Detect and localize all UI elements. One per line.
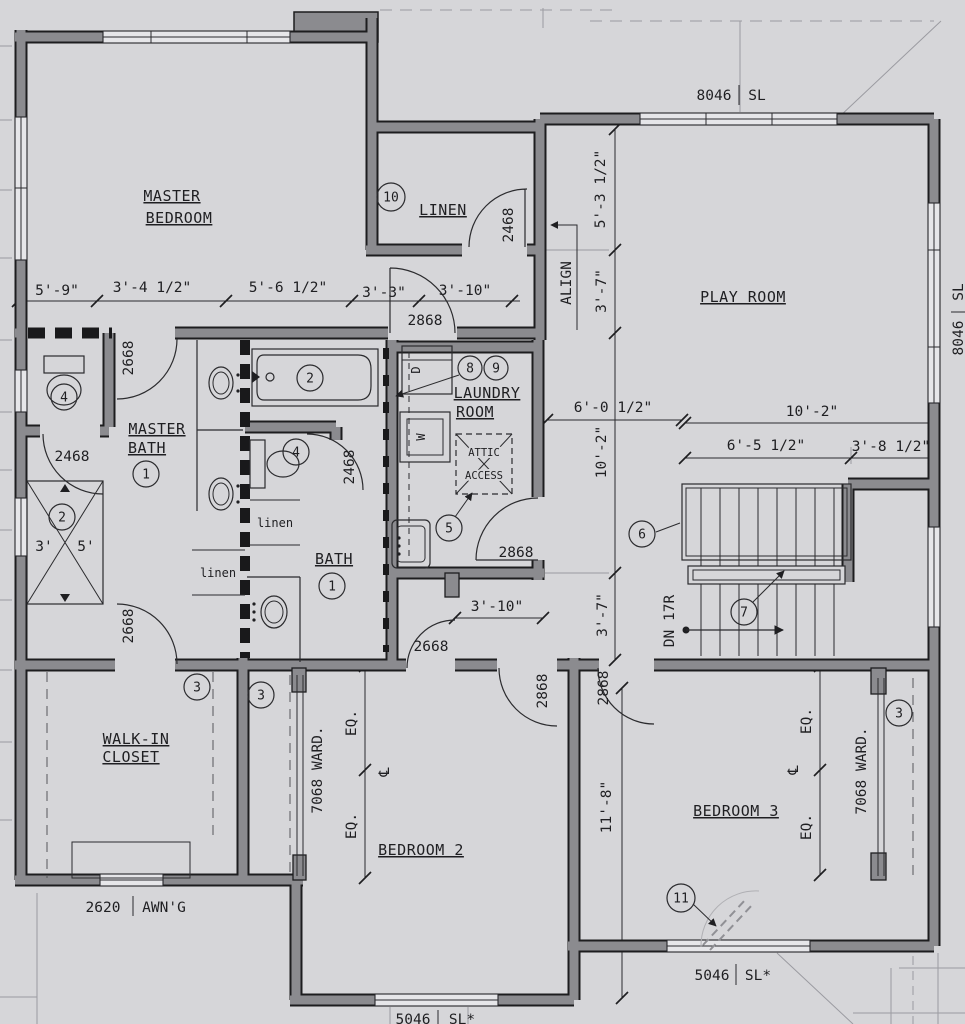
room-label-laundry-1: LAUNDRY: [454, 384, 521, 402]
dim-eq-bed3-bottom: EQ.: [799, 814, 815, 840]
keynote-5-number: 5: [445, 522, 453, 537]
dim-3-10-top: 3'-10": [439, 283, 491, 299]
window-label-playroom-top: 8046 SL: [697, 85, 766, 105]
window-playroom-right-lower: [928, 527, 940, 627]
linen-shelf-label-2: linen: [200, 566, 236, 580]
keynote-11: 11: [667, 884, 695, 912]
linen-shelf-label-1: linen: [257, 516, 293, 530]
window-type: AWN'G: [142, 900, 186, 916]
dim-3-7-lower: 3'-7": [595, 593, 611, 637]
dim-5-6-half: 5'-6 1/2": [249, 280, 328, 296]
window-type: SL: [748, 88, 766, 104]
room-label-master-bath-2: BATH: [128, 439, 166, 457]
keynote-8-number: 8: [466, 362, 474, 377]
keynote-4-number: 4: [292, 446, 300, 461]
keynote-4-center-wc: 4: [283, 439, 309, 465]
room-label-linen: LINEN: [419, 201, 467, 219]
dim-10-2-hall: 10'-2": [594, 426, 610, 478]
dim-6-0-half: 6'-0 1/2": [574, 400, 653, 416]
window-type: SL*: [745, 968, 771, 984]
window-shower-left: [15, 498, 27, 556]
centerline-bed2: ℄: [377, 767, 393, 778]
washer-label: W: [414, 433, 428, 441]
room-label-play-room: PLAY ROOM: [700, 288, 786, 306]
wardrobe-label-bed3: 7068 WARD.: [854, 727, 870, 814]
door-label-linen: 2468: [501, 208, 517, 243]
dim-10-2-stairs: 10'-2": [786, 404, 838, 420]
attic-access-label-2: ACCESS: [465, 470, 503, 482]
window-label-bed3: 5046 SL*: [695, 964, 772, 985]
dryer-label: D: [409, 366, 423, 373]
handrail: [688, 566, 845, 584]
bathtub: [252, 349, 378, 406]
window-type: SL*: [449, 1012, 475, 1024]
window-bed2: [375, 994, 498, 1006]
window-label-closet: 2620 AWN'G: [86, 896, 186, 916]
keynote-6-number: 6: [638, 528, 646, 543]
dim-eq-bed2-bottom: EQ.: [344, 813, 360, 839]
keynote-2-tub: 2: [297, 365, 323, 391]
keynote-3-number: 3: [895, 707, 903, 722]
window-label-playroom-right: 8046 SL: [951, 283, 965, 355]
staircase: [682, 484, 851, 656]
door-label-bedroom3: 2868: [596, 671, 612, 706]
dim-5-9: 5'-9": [35, 283, 79, 299]
window-size: 8046: [951, 321, 965, 356]
keynote-1-bath: 1: [319, 573, 345, 599]
dim-3-8-half: 3'-8 1/2": [852, 439, 931, 455]
keynote-9: 9: [484, 356, 508, 380]
dim-5-3-half: 5'-3 1/2": [593, 150, 609, 229]
window-size: 5046: [396, 1012, 431, 1024]
room-label-laundry-2: ROOM: [456, 403, 494, 421]
keynote-6: 6: [629, 521, 655, 547]
keynote-8: 8: [458, 356, 482, 380]
keynote-4-number: 4: [60, 391, 68, 406]
window-bath-left: [15, 370, 27, 412]
room-label-master-bedroom-1: MASTER: [143, 187, 201, 205]
window-playroom-top: [640, 113, 837, 125]
wardrobe-label-bed2: 7068 WARD.: [310, 726, 326, 813]
dimension-lines: [12, 123, 940, 1004]
keynote-3-number: 3: [193, 681, 201, 696]
floor-plan: 10 4 2 1 2 4 8 9 5 6 7 1 3 3 3 11 MASTER…: [0, 0, 965, 1024]
dim-3-3: 3'-3": [362, 285, 406, 301]
attic-access-label-1: ATTIC: [468, 447, 500, 459]
door-label-master-wc: 2468: [55, 449, 90, 465]
dim-eq-bed3-top: EQ.: [799, 708, 815, 734]
keynote-2-number: 2: [306, 372, 314, 387]
stairs-down-label: DN 17R: [662, 595, 678, 648]
door-label-hall: 2868: [408, 313, 443, 329]
centerline-bed3: ℄: [786, 765, 802, 776]
door-linen: [469, 189, 527, 247]
window-size: 2620: [86, 900, 121, 916]
dim-shower-width: 3': [35, 539, 52, 555]
window-master-left: [15, 117, 27, 260]
window-master-top: [103, 31, 290, 43]
room-label-master-bath-1: MASTER: [128, 420, 186, 438]
keynote-10: 10: [377, 183, 405, 211]
window-size: 5046: [695, 968, 730, 984]
window-size: 8046: [697, 88, 732, 104]
window-bed3: [667, 940, 810, 952]
window-playroom-right-upper: [928, 203, 940, 403]
align-label: ALIGN: [559, 261, 575, 305]
dim-3-10-hall: 3'-10": [471, 599, 523, 615]
dimension-ticks: [12, 123, 940, 1004]
keynote-5: 5: [436, 515, 462, 541]
bath-vanity: [247, 577, 300, 662]
keynote-4-master-wc: 4: [51, 384, 77, 410]
keynote-3-closet: 3: [184, 674, 210, 700]
keynote-3-bed2: 3: [248, 682, 274, 708]
dim-6-5-half: 6'-5 1/2": [727, 438, 806, 454]
room-label-walk-in-2: CLOSET: [102, 748, 159, 766]
keynote-1-number: 1: [328, 580, 336, 595]
master-vanity: [197, 340, 243, 511]
door-label-walk-in: 2668: [121, 609, 137, 644]
keynote-2-shower: 2: [49, 504, 75, 530]
wardrobe-doors-bed2: [290, 675, 303, 876]
room-label-walk-in-1: WALK-IN: [103, 730, 170, 748]
keynote-1-master-bath: 1: [133, 461, 159, 487]
keynote-2-number: 2: [58, 511, 66, 526]
door-label-center-wc: 2468: [342, 450, 358, 485]
keynote-7-number: 7: [740, 606, 748, 621]
door-label-master-bath-entry: 2668: [121, 341, 137, 376]
window-type: SL: [951, 283, 965, 301]
keynote-3-bed3: 3: [886, 700, 912, 726]
blueprint-page: 10 4 2 1 2 4 8 9 5 6 7 1 3 3 3 11 MASTER…: [0, 0, 965, 1024]
keynote-3-number: 3: [257, 689, 265, 704]
door-label-bedroom2: 2868: [535, 674, 551, 709]
keynote-10-number: 10: [383, 191, 399, 206]
keynote-9-number: 9: [492, 362, 500, 377]
room-label-bedroom-2: BEDROOM 2: [378, 841, 464, 859]
walk-in-closet-shelving: [47, 672, 213, 878]
room-label-bedroom-3: BEDROOM 3: [693, 802, 779, 820]
attic-access-panel: [456, 434, 512, 494]
window-closet-awning: [100, 874, 163, 886]
window-label-bed2: 5046 SL*: [396, 1010, 476, 1024]
keynote-7: 7: [731, 599, 757, 625]
dim-3-4-half: 3'-4 1/2": [113, 280, 192, 296]
dim-11-8: 11'-8": [599, 781, 615, 833]
room-label-bath: BATH: [315, 550, 353, 568]
room-label-master-bedroom-2: BEDROOM: [146, 209, 213, 227]
dim-shower-length: 5': [77, 539, 94, 555]
door-label-laundry: 2868: [499, 545, 534, 561]
windows: [15, 31, 940, 1006]
keynote-1-number: 1: [142, 468, 150, 483]
door-label-bath-hall: 2668: [414, 639, 449, 655]
dim-eq-bed2-top: EQ.: [344, 710, 360, 736]
dim-3-7-upper: 3'-7": [594, 269, 610, 313]
keynote-11-number: 11: [673, 892, 689, 907]
